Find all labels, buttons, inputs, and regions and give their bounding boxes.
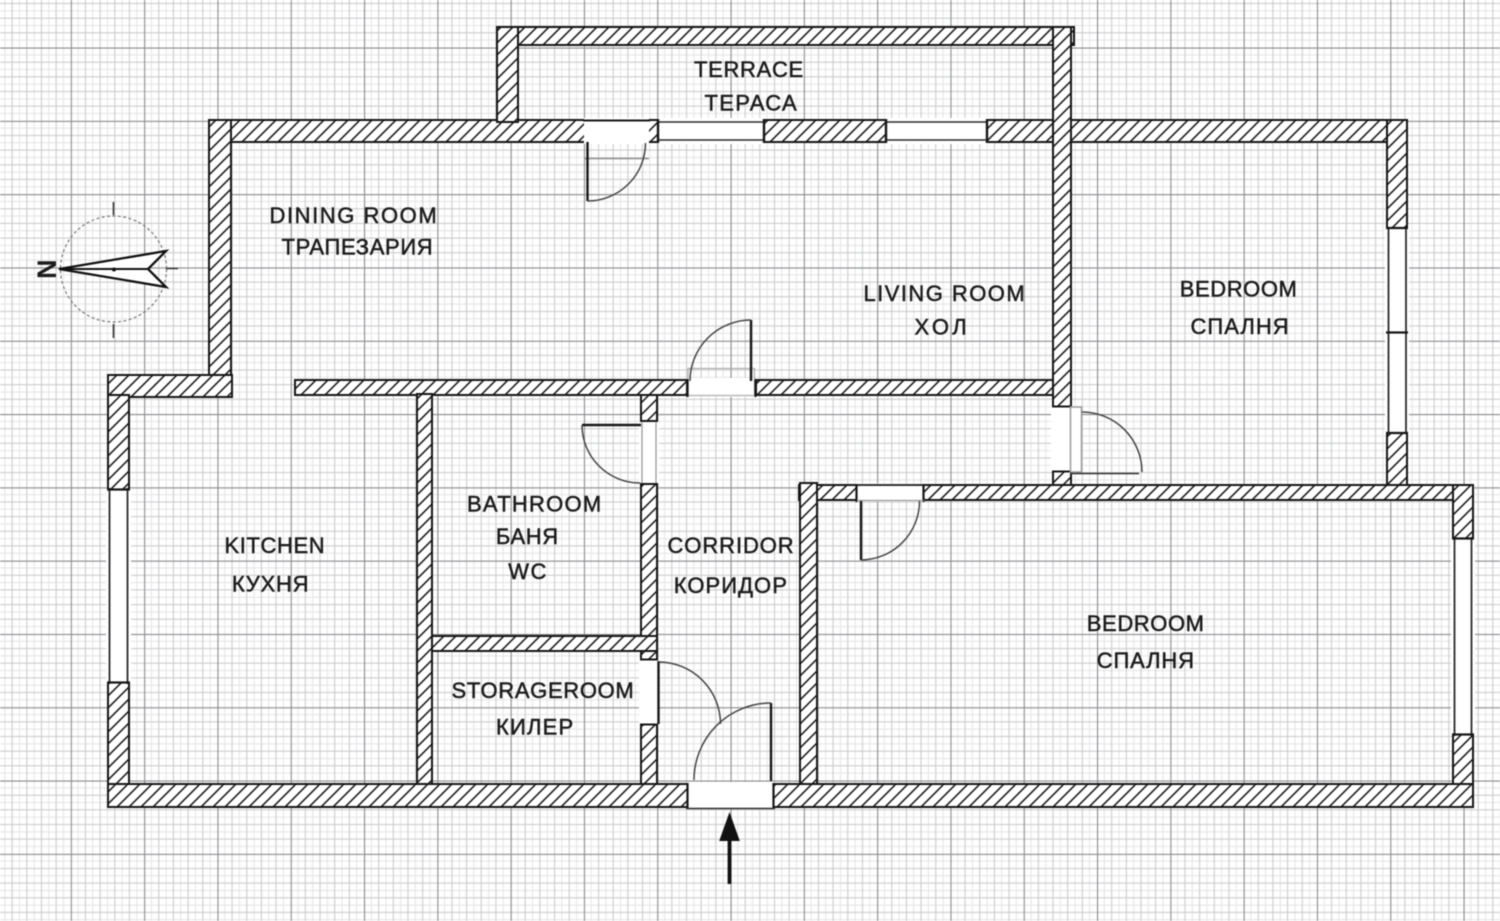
svg-text:СПАЛНЯ: СПАЛНЯ [1191, 314, 1290, 339]
svg-text:КИЛЕР: КИЛЕР [496, 715, 574, 740]
svg-text:СПАЛНЯ: СПАЛНЯ [1097, 648, 1195, 673]
svg-text:КОРИДОР: КОРИДОР [674, 573, 788, 598]
svg-text:КУХНЯ: КУХНЯ [232, 572, 310, 597]
svg-text:ХОЛ: ХОЛ [915, 315, 968, 340]
svg-text:CORRIDOR: CORRIDOR [668, 533, 795, 558]
svg-text:STORAGEROOM: STORAGEROOM [452, 678, 635, 703]
svg-text:N: N [32, 260, 62, 280]
svg-text:WC: WC [508, 559, 547, 584]
svg-text:BEDROOM: BEDROOM [1180, 277, 1298, 302]
svg-text:БАНЯ: БАНЯ [496, 524, 559, 549]
svg-text:BATHROOM: BATHROOM [467, 492, 602, 517]
svg-text:BEDROOM: BEDROOM [1087, 611, 1205, 636]
svg-text:DINING ROOM: DINING ROOM [270, 203, 438, 228]
svg-text:ТРАПЕЗАРИЯ: ТРАПЕЗАРИЯ [282, 235, 434, 260]
svg-text:LIVING ROOM: LIVING ROOM [864, 281, 1026, 306]
svg-text:ТЕРАСА: ТЕРАСА [705, 91, 798, 116]
svg-text:TERRACE: TERRACE [694, 57, 804, 82]
svg-text:KITCHEN: KITCHEN [225, 533, 326, 558]
